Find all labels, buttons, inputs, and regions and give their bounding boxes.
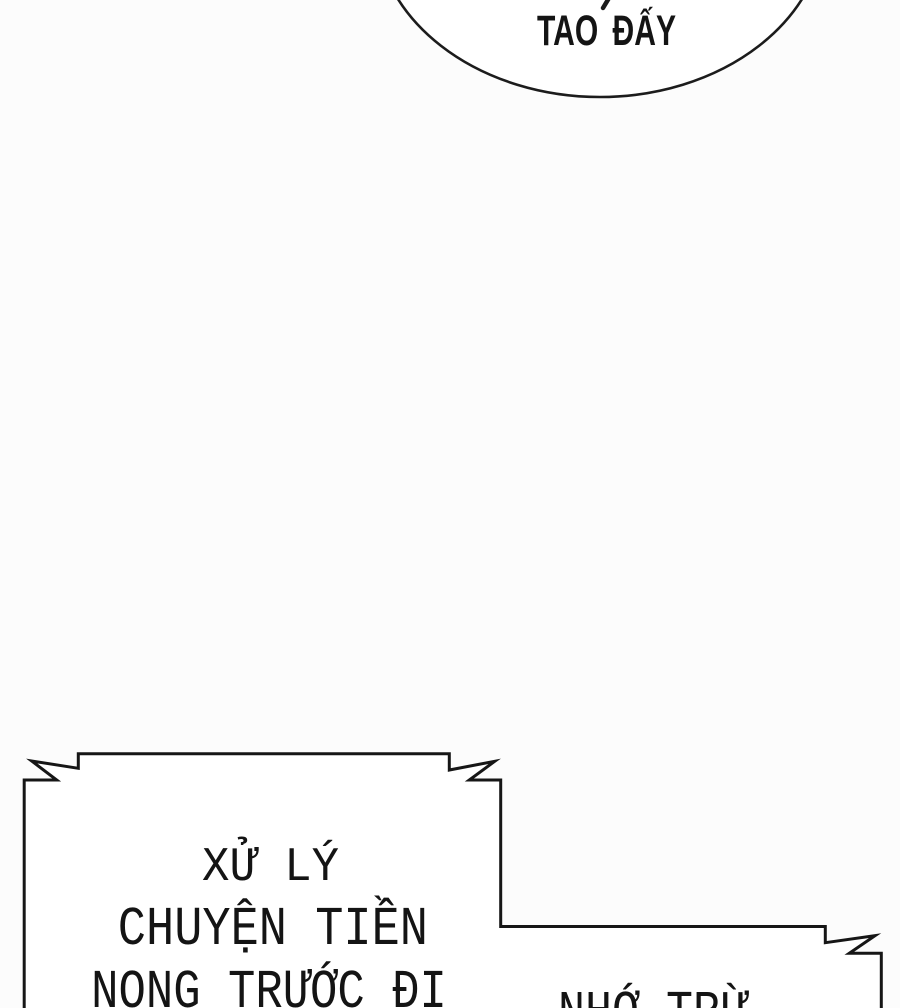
svg-text:NHỚ TRỪ: NHỚ TRỪ [558, 982, 749, 1008]
svg-text:XỬ LÝ: XỬ LÝ [202, 837, 339, 896]
svg-text:CHUYỆN TIỀN: CHUYỆN TIỀN [118, 895, 428, 961]
svg-text:TAO ĐẤY: TAO ĐẤY [537, 7, 676, 54]
svg-text:NONG TRƯỚC ĐI: NONG TRƯỚC ĐI [91, 961, 447, 1008]
